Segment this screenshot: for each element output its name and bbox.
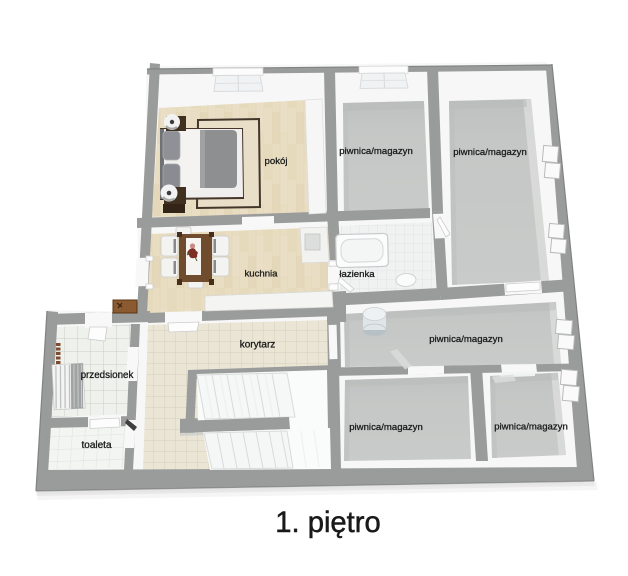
svg-text:przedsionek: przedsionek [81, 370, 134, 381]
svg-text:1. piętro: 1. piętro [275, 507, 380, 539]
svg-text:toaleta: toaleta [81, 440, 111, 451]
svg-text:pokój: pokój [265, 156, 288, 167]
svg-text:korytarz: korytarz [240, 340, 276, 351]
svg-text:kuchnia: kuchnia [244, 269, 278, 280]
svg-text:piwnica/magazyn: piwnica/magazyn [339, 146, 413, 157]
svg-text:piwnica/magazyn: piwnica/magazyn [349, 422, 423, 433]
svg-text:piwnica/magazyn: piwnica/magazyn [494, 422, 568, 433]
svg-text:piwnica/magazyn: piwnica/magazyn [453, 147, 527, 158]
svg-text:piwnica/magazyn: piwnica/magazyn [429, 334, 503, 345]
svg-text:łazienka: łazienka [339, 269, 375, 280]
